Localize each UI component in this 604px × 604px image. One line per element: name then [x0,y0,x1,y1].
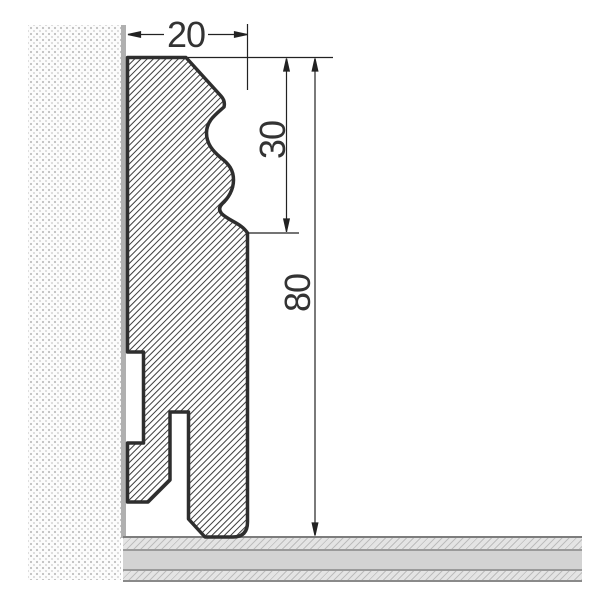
arrow-right-icon [235,32,248,38]
skirting-profile-section [128,58,248,538]
technical-drawing-page: 20 30 80 [0,0,604,604]
arrow-left-icon [128,32,141,38]
arrow-up-icon [284,59,290,72]
profile-height-dimension-label: 30 [255,121,291,159]
width-dimension-label: 20 [167,17,205,53]
total-height-dimension-label: 80 [280,274,316,312]
arrow-down-icon [312,523,318,536]
arrow-down-icon [284,219,290,232]
arrow-up-icon [312,59,318,72]
